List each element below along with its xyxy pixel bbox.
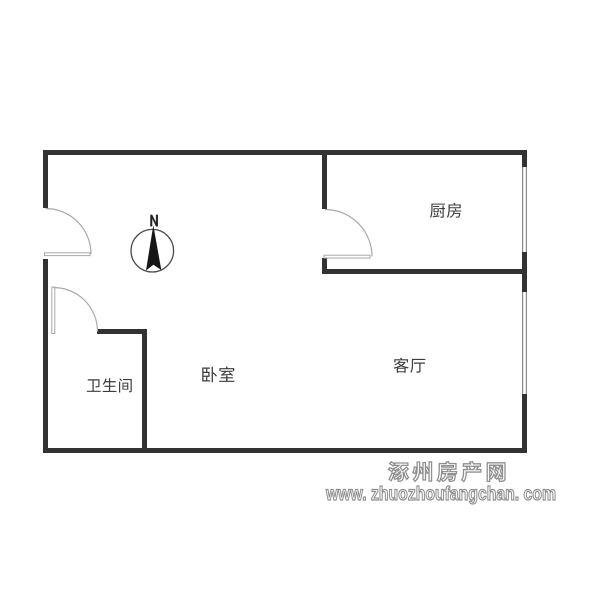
svg-text:www. zhuozhoufangchan. com: www. zhuozhoufangchan. com — [325, 484, 556, 505]
